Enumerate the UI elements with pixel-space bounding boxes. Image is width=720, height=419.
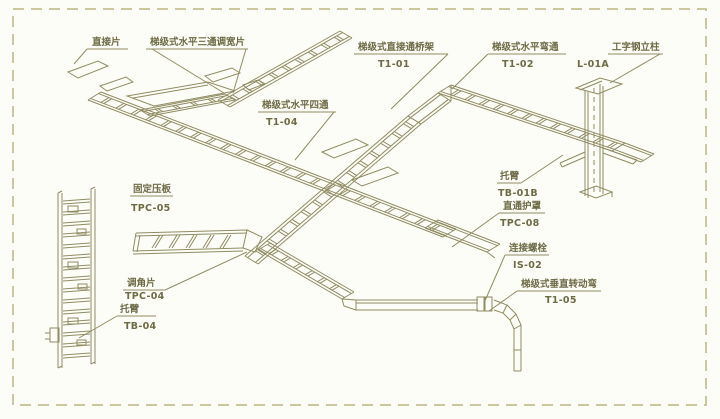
- diagram-line: [230, 38, 352, 107]
- leader-line: [79, 316, 117, 338]
- diagram-line: [514, 325, 521, 329]
- diagram-line: [487, 244, 500, 252]
- diagram-line: [385, 207, 393, 212]
- cable-tray-isometric-diagram: 直接片梯级式水平三通调宽片梯级式直接通桥架T1-01梯级式水平弯通T1-02工字…: [0, 0, 720, 419]
- diagram-shape: [352, 167, 398, 186]
- diagram-line: [63, 309, 90, 311]
- diagram-line: [238, 151, 246, 156]
- diagram-line: [88, 92, 101, 100]
- diagram-line: [451, 90, 459, 95]
- diagram-line: [496, 105, 504, 110]
- leader-line: [521, 155, 563, 183]
- diagram-line: [63, 235, 90, 237]
- diagram-line: [607, 142, 615, 147]
- diagram-line: [418, 99, 448, 122]
- diagram-line: [539, 119, 547, 124]
- diagram-line: [261, 248, 345, 297]
- diagram-line: [408, 116, 421, 124]
- leader-line: [165, 252, 247, 290]
- diagram-line: [438, 220, 500, 244]
- diagram-line: [411, 95, 441, 118]
- diagram-line: [119, 104, 127, 109]
- callout-support-arm-4-label: 托臂: [120, 303, 140, 315]
- diagram-line: [493, 104, 501, 109]
- diagram-line: [340, 31, 352, 38]
- diagram-line: [101, 98, 109, 103]
- diagram-line: [487, 252, 495, 258]
- diagram-line: [414, 219, 422, 224]
- diagram-line: [550, 123, 558, 128]
- callout-horizontal-cross-code: T1-04: [266, 117, 298, 128]
- diagram-line: [63, 199, 90, 201]
- diagram-line: [402, 214, 410, 219]
- callout-fixing-pressure-plate-code: TPC-05: [131, 203, 171, 214]
- diagram-line: [63, 246, 90, 248]
- diagram-line: [358, 197, 366, 202]
- callout-connecting-bolt-label: 连接螺栓: [509, 242, 548, 254]
- diagram-line: [178, 127, 186, 132]
- callout-fixing-pressure-plate-label: 固定压板: [133, 183, 172, 195]
- callout-support-arm-b-label: 托臂: [500, 170, 520, 182]
- diagram-line: [268, 162, 276, 167]
- diagram-line: [342, 292, 354, 299]
- diagram-line: [633, 160, 637, 164]
- bolt-joint: [477, 297, 484, 311]
- diagram-line: [400, 213, 408, 218]
- leader-line: [295, 112, 334, 160]
- diagram-line: [417, 220, 425, 225]
- diagram-line: [133, 85, 208, 98]
- leader-line: [489, 291, 517, 311]
- callout-straight-cover-code: TPC-08: [500, 218, 540, 229]
- diagram-shape: [243, 230, 262, 252]
- diagram-line: [191, 132, 199, 137]
- diagram-line: [63, 257, 90, 259]
- callout-i-beam-column-label: 工字钢立柱: [612, 41, 660, 53]
- diagram-line: [176, 126, 184, 131]
- diagram-line: [560, 163, 562, 167]
- diagram-line: [63, 224, 90, 226]
- diagram-line: [313, 179, 321, 184]
- diagram-line: [63, 276, 90, 278]
- diagram-line: [355, 196, 363, 201]
- diagram-line: [255, 122, 418, 262]
- diagram-shape: [100, 77, 133, 91]
- diagram-line: [510, 110, 518, 115]
- ladder-detail: [68, 262, 78, 268]
- callout-straight-cover-label: 直通护罩: [503, 200, 542, 212]
- diagram-line: [295, 172, 303, 177]
- diagram-line: [63, 254, 90, 256]
- diagram-shape: [342, 299, 356, 310]
- diagram-line: [468, 96, 476, 101]
- diagram-line: [133, 251, 243, 254]
- callout-connecting-bolt-code: IS-02: [513, 260, 542, 271]
- callout-support-arm-4-code: TB-04: [124, 321, 156, 332]
- diagram-line: [63, 301, 90, 303]
- diagram-line: [370, 201, 378, 206]
- diagram-line: [133, 248, 243, 251]
- diagram-line: [133, 233, 136, 251]
- callout-labels: 直接片梯级式水平三通调宽片梯级式直接通桥架T1-01梯级式水平弯通T1-02工字…: [74, 36, 663, 338]
- diagram-line: [161, 121, 169, 126]
- diagram-line: [253, 156, 261, 161]
- diagram-line: [193, 133, 201, 138]
- diagram-line: [536, 118, 544, 123]
- diagram-line: [603, 148, 637, 160]
- diagram-line: [258, 250, 342, 299]
- callout-angle-adjust-plate-label: 调角片: [127, 277, 156, 289]
- diagram-line: [245, 256, 258, 264]
- diagram-line: [235, 149, 243, 154]
- diagram-line: [63, 243, 90, 245]
- drawing-sheet: 直接片梯级式水平三通调宽片梯级式直接通桥架T1-01梯级式水平弯通T1-02工字…: [0, 0, 720, 419]
- callout-straight-through-bridge-code: T1-01: [378, 59, 410, 70]
- diagram-line: [205, 138, 213, 143]
- diagram-line: [560, 152, 585, 163]
- callout-vertical-rotating-bend-label: 梯级式垂直转动弯: [521, 278, 598, 290]
- diagram-line: [610, 143, 618, 148]
- diagram-line: [438, 93, 612, 151]
- diagram-line: [283, 168, 291, 173]
- diagram-line: [136, 230, 247, 233]
- leader-line: [610, 54, 660, 83]
- diagram-line: [131, 109, 139, 114]
- diagram-line: [223, 145, 231, 150]
- diagram-line: [149, 116, 157, 121]
- diagram-line: [137, 235, 140, 252]
- diagram-line: [507, 109, 515, 114]
- diagram-line: [250, 155, 258, 160]
- diagram-line: [479, 99, 487, 104]
- diagram-line: [63, 213, 90, 215]
- diagram-line: [116, 103, 124, 108]
- diagram-line: [63, 312, 90, 314]
- diagram-line: [63, 298, 90, 300]
- leader-line: [74, 49, 87, 64]
- diagram-line: [625, 143, 654, 154]
- diagram-line: [310, 178, 318, 183]
- diagram-line: [134, 110, 142, 115]
- diagram-shape: [205, 68, 240, 82]
- diagram-line: [298, 174, 306, 179]
- diagram-line: [63, 221, 90, 223]
- line-art: [45, 31, 654, 371]
- diagram-line: [562, 157, 585, 167]
- diagram-line: [343, 191, 351, 196]
- diagram-line: [91, 187, 95, 189]
- diagram-line: [564, 128, 572, 133]
- diagram-line: [522, 114, 530, 119]
- diagram-line: [438, 85, 451, 93]
- diagram-line: [503, 305, 507, 313]
- diagram-line: [63, 331, 90, 333]
- diagram-line: [63, 202, 90, 204]
- diagram-line: [63, 265, 90, 267]
- diagram-line: [641, 154, 654, 162]
- leader-line: [452, 213, 499, 247]
- diagram-line: [58, 366, 62, 368]
- diagram-line: [63, 353, 90, 355]
- leader-line: [152, 49, 224, 93]
- callout-angle-adjust-plate-code: TPC-04: [125, 291, 165, 302]
- diagram-line: [280, 167, 288, 172]
- diagram-line: [425, 228, 487, 252]
- diagram-line: [448, 87, 622, 145]
- diagram-line: [553, 124, 561, 129]
- callout-horizontal-cross-label: 梯级式水平四通: [262, 99, 329, 111]
- diagram-line: [387, 208, 395, 213]
- diagram-line: [408, 93, 438, 116]
- diagram-line: [245, 116, 408, 256]
- diagram-line: [510, 314, 516, 320]
- callout-support-arm-b-code: TB-01B: [498, 188, 538, 199]
- callout-i-beam-column-code: L-01A: [577, 59, 609, 70]
- diagram-line: [220, 144, 228, 149]
- callout-tee-width-adjust-plate-label: 梯级式水平三通调宽片: [150, 36, 245, 48]
- diagram-line: [265, 161, 273, 166]
- callout-vertical-rotating-bend-code: T1-05: [545, 295, 577, 306]
- callout-straight-through-bridge-label: 梯级式直接通桥架: [358, 41, 435, 53]
- diagram-line: [91, 362, 95, 364]
- leader-line: [484, 255, 505, 303]
- callout-horizontal-bend-label: 梯级式水平弯通: [492, 41, 559, 53]
- callout-horizontal-bend-code: T1-02: [502, 59, 534, 70]
- diagram-line: [63, 356, 90, 358]
- leader-line: [452, 54, 488, 89]
- callout-straight-connector-plate-label: 直接片: [92, 36, 121, 48]
- diagram-line: [421, 101, 451, 124]
- diagram-line: [612, 143, 625, 151]
- diagram-line: [270, 243, 354, 292]
- diagram-line: [465, 95, 473, 100]
- diagram-line: [164, 122, 172, 127]
- diagram-line: [372, 202, 380, 207]
- diagram-shape: [494, 300, 521, 371]
- diagram-line: [58, 191, 62, 193]
- diagram-line: [104, 99, 112, 104]
- diagram-line: [63, 290, 90, 292]
- diagram-line: [453, 91, 461, 96]
- diagram-line: [567, 129, 575, 134]
- diagram-line: [482, 100, 490, 105]
- diagram-line: [248, 118, 411, 258]
- diagram-line: [208, 139, 216, 144]
- diagram-line: [63, 320, 90, 322]
- diagram-line: [525, 115, 533, 120]
- diagram-line: [63, 279, 90, 281]
- diagram-shape: [322, 139, 368, 158]
